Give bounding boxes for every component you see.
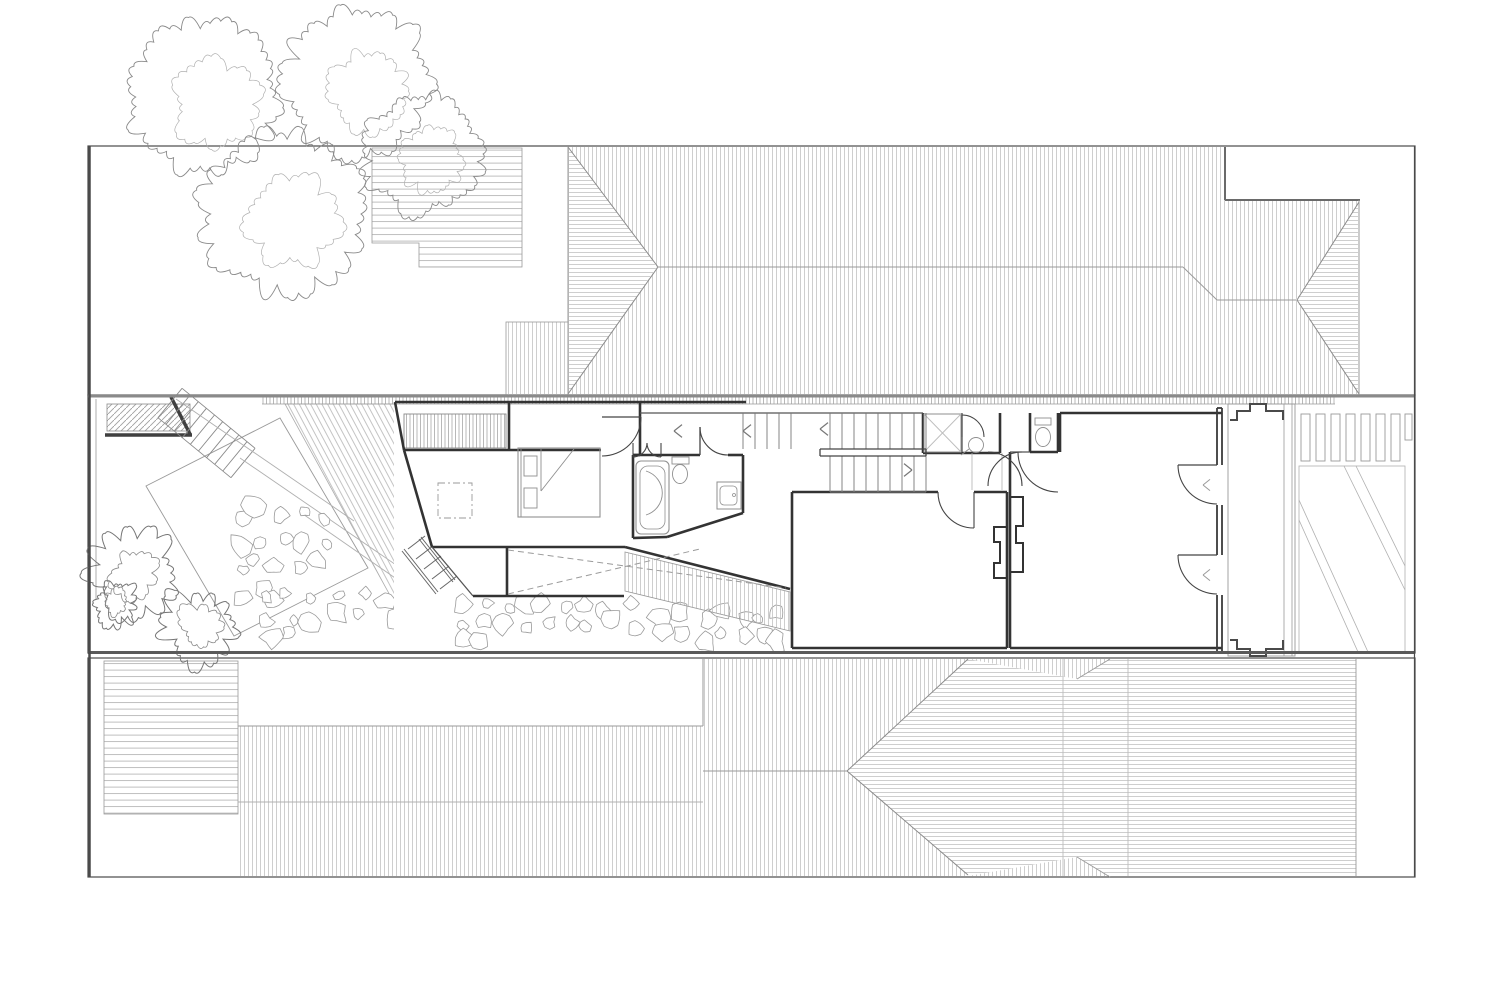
- stone: [253, 537, 265, 549]
- stone: [505, 604, 515, 613]
- house-base: [262, 396, 1335, 653]
- stone: [327, 602, 346, 622]
- stone: [300, 507, 310, 516]
- site-plan-page: [0, 0, 1500, 1000]
- site-plan-drawing: [0, 0, 1500, 1000]
- stone: [601, 611, 620, 629]
- stone: [521, 622, 532, 633]
